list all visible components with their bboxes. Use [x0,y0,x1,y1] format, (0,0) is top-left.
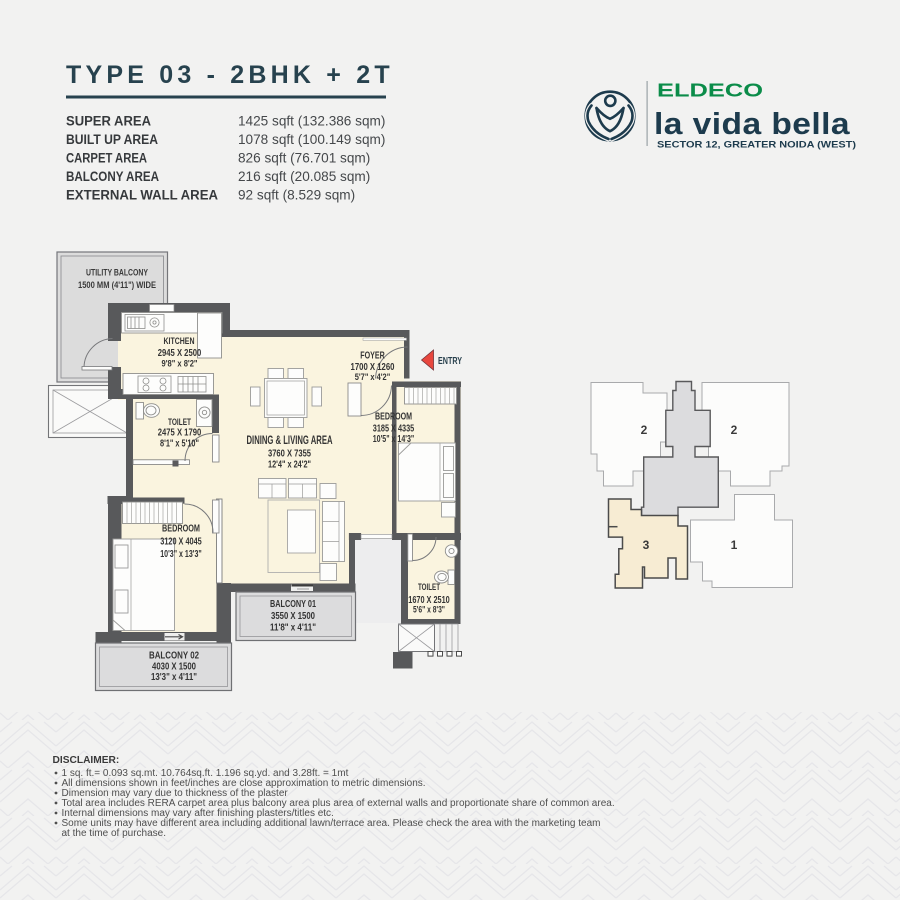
svg-text:12'4" x 24'2": 12'4" x 24'2" [268,459,311,471]
svg-text:CARPET AREA: CARPET AREA [66,151,147,166]
svg-text:TYPE 03 - 2BHK + 2T: TYPE 03 - 2BHK + 2T [66,61,394,89]
svg-text:EXTERNAL WALL AREA: EXTERNAL WALL AREA [66,188,218,203]
svg-text:11'8" x 4'11": 11'8" x 4'11" [270,623,316,634]
svg-text:BALCONY 02: BALCONY 02 [149,651,199,662]
svg-text:DINING & LIVING AREA: DINING & LIVING AREA [247,433,333,447]
svg-text:TOILET: TOILET [168,417,191,428]
svg-text:9'8" x 8'2": 9'8" x 8'2" [162,359,198,369]
svg-text:BALCONY AREA: BALCONY AREA [66,169,159,184]
svg-text:BEDROOM: BEDROOM [375,412,412,423]
svg-text:826 sqft (76.701 sqm): 826 sqft (76.701 sqm) [238,151,370,166]
svg-text:2475 X 1790: 2475 X 1790 [158,428,202,439]
svg-text:3185 X 4335: 3185 X 4335 [373,423,415,434]
svg-text:1425 sqft (132.386 sqm): 1425 sqft (132.386 sqm) [238,114,385,129]
svg-text:1500 MM (4'11") WIDE: 1500 MM (4'11") WIDE [78,280,156,291]
svg-text:ENTRY: ENTRY [438,356,462,367]
svg-text:KITCHEN: KITCHEN [164,336,195,346]
svg-text:at the time of purchase.: at the time of purchase. [62,828,167,839]
svg-text:10'5" x 14'3": 10'5" x 14'3" [373,434,415,445]
svg-text:5'7" x 4'2": 5'7" x 4'2" [355,372,391,382]
svg-text:la vida bella: la vida bella [654,106,850,141]
svg-text:2: 2 [731,423,738,437]
svg-text:8'1" x 5'10": 8'1" x 5'10" [160,439,199,450]
svg-text:SUPER AREA: SUPER AREA [66,114,151,129]
svg-text:5'6" x 8'3": 5'6" x 8'3" [413,605,445,615]
svg-text:92 sqft (8.529 sqm): 92 sqft (8.529 sqm) [238,188,355,203]
svg-text:UTILITY BALCONY: UTILITY BALCONY [86,268,148,279]
svg-text:ELDECO: ELDECO [657,80,763,101]
svg-text:13'3" x 4'11": 13'3" x 4'11" [151,672,197,683]
svg-text:3: 3 [643,538,650,552]
svg-text:2945 X 2500: 2945 X 2500 [158,348,202,359]
svg-text:1: 1 [731,538,738,552]
svg-text:BALCONY 01: BALCONY 01 [270,599,316,610]
svg-text:BEDROOM: BEDROOM [162,524,200,535]
svg-text:SECTOR 12, GREATER NOIDA (WEST: SECTOR 12, GREATER NOIDA (WEST) [657,140,856,151]
svg-text:FOYER: FOYER [360,351,385,362]
svg-text:DISCLAIMER:: DISCLAIMER: [53,755,120,766]
svg-text:2: 2 [641,423,648,437]
svg-text:4030 X 1500: 4030 X 1500 [152,662,196,673]
svg-text:216 sqft (20.085 sqm): 216 sqft (20.085 sqm) [238,169,370,184]
svg-text:1078 sqft (100.149 sqm): 1078 sqft (100.149 sqm) [238,132,385,147]
svg-text:BUILT UP AREA: BUILT UP AREA [66,132,158,147]
svg-text:10'3" x 13'3": 10'3" x 13'3" [160,549,202,560]
svg-text:3120 X 4045: 3120 X 4045 [160,537,202,548]
svg-text:3550 X 1500: 3550 X 1500 [271,611,315,622]
svg-text:TOILET: TOILET [418,582,440,593]
